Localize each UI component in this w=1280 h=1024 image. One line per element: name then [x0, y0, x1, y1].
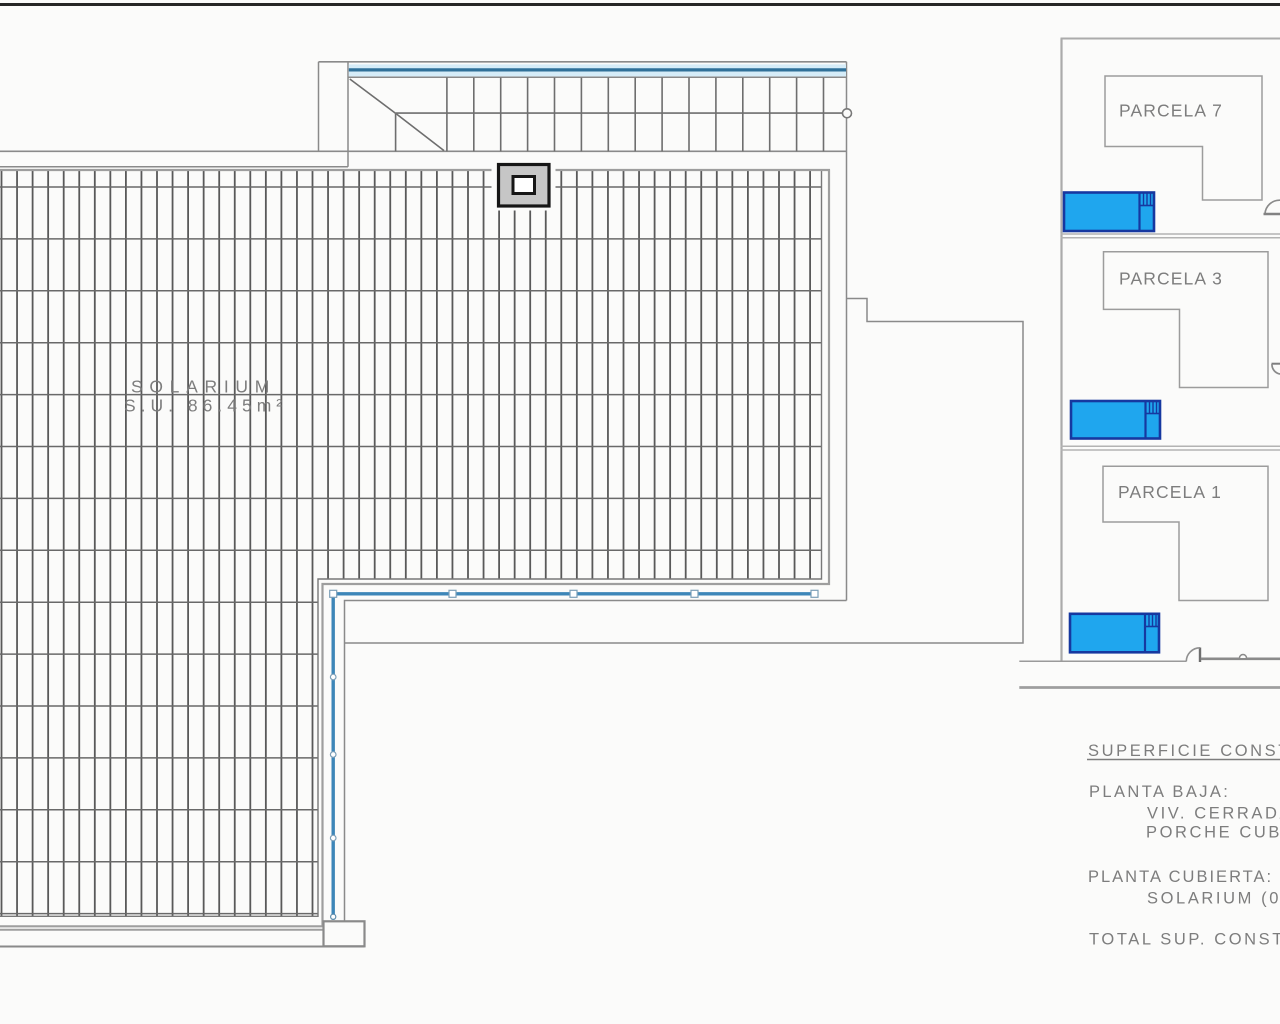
svg-text:SUPERFICIE CONSTRUIDA: SUPERFICIE CONSTRUIDA [1088, 742, 1280, 760]
svg-text:S.U. 86.45m²: S.U. 86.45m² [124, 396, 287, 416]
svg-text:PARCELA 7: PARCELA 7 [1119, 101, 1223, 121]
svg-text:VIV. CERRADA (: VIV. CERRADA ( [1147, 805, 1280, 823]
svg-text:SOLARIUM: SOLARIUM [131, 377, 276, 397]
svg-text:TOTAL SUP. CONST: TOTAL SUP. CONST [1089, 931, 1280, 949]
svg-text:PLANTA BAJA:: PLANTA BAJA: [1089, 783, 1230, 801]
svg-text:PARCELA 3: PARCELA 3 [1119, 269, 1223, 289]
svg-text:PORCHE CUBIERTO: PORCHE CUBIERTO [1146, 824, 1280, 842]
svg-text:PLANTA CUBIERTA:: PLANTA CUBIERTA: [1088, 868, 1273, 886]
svg-text:SOLARIUM (06.45: SOLARIUM (06.45 [1147, 890, 1280, 908]
svg-text:PARCELA 1: PARCELA 1 [1118, 482, 1222, 502]
